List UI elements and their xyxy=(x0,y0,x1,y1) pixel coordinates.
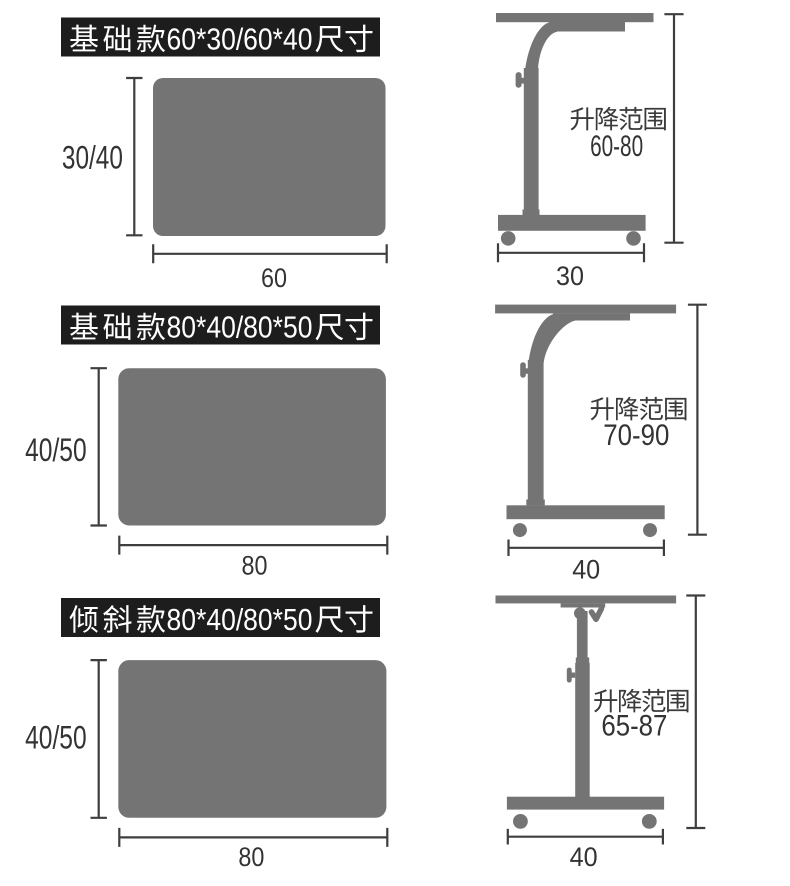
svg-text:40: 40 xyxy=(570,842,598,872)
svg-text:70-90: 70-90 xyxy=(603,419,669,452)
svg-text:30/40: 30/40 xyxy=(62,140,123,176)
svg-text:80: 80 xyxy=(238,842,264,872)
svg-text:40/50: 40/50 xyxy=(25,720,87,756)
svg-text:80*40/80*50: 80*40/80*50 xyxy=(167,602,313,637)
svg-text:60-80: 60-80 xyxy=(590,130,643,163)
svg-text:65-87: 65-87 xyxy=(601,710,667,743)
svg-text:40: 40 xyxy=(572,555,600,585)
svg-text:40/50: 40/50 xyxy=(25,432,87,468)
svg-text:30: 30 xyxy=(556,261,584,291)
svg-text:80*40/80*50: 80*40/80*50 xyxy=(167,310,313,345)
svg-text:60*30/60*40: 60*30/60*40 xyxy=(167,22,313,57)
svg-text:60: 60 xyxy=(261,263,287,293)
svg-text:80: 80 xyxy=(242,551,268,581)
